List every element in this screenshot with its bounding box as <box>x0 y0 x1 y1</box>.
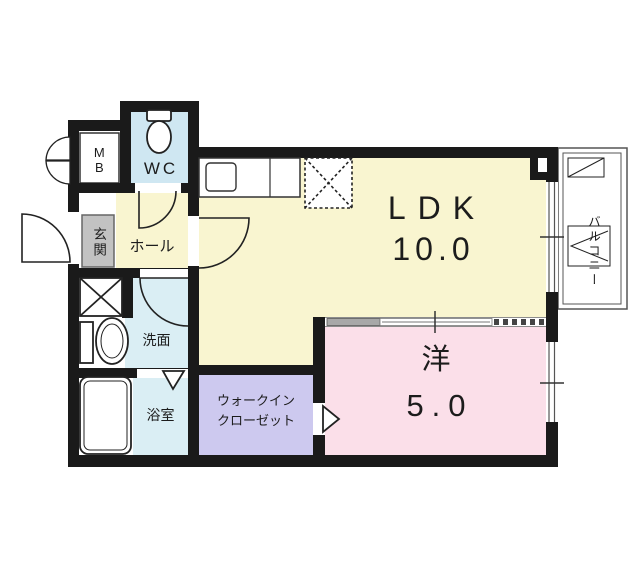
toilet-bowl <box>147 121 171 153</box>
room-meter-box <box>80 133 119 183</box>
toilet-fixture <box>147 110 171 153</box>
room-wic <box>199 375 313 455</box>
wall-mb-bottom <box>68 183 131 193</box>
wall-bottom <box>68 455 558 467</box>
room-entrance <box>82 215 114 267</box>
room-hall <box>116 191 188 268</box>
toilet-tank <box>147 110 171 121</box>
opening-wc-door <box>135 183 181 193</box>
kitchen-sink <box>206 163 236 191</box>
wall-wic-right <box>313 317 325 458</box>
sliding-door-panel-gray <box>327 319 380 326</box>
floorplan-page: LDK 10.0 洋 5.0 ウォークイン クローゼット ホール 洗面 浴室 W… <box>0 0 640 578</box>
kitchen-counter <box>199 158 300 197</box>
washer-space <box>80 278 122 316</box>
floorplan-drawing <box>0 0 640 578</box>
wall-ldk-top <box>188 147 558 158</box>
room-washroom <box>125 278 188 368</box>
refrigerator-space <box>305 158 352 208</box>
opening-washroom-door <box>140 269 188 278</box>
corner-notch <box>538 158 547 172</box>
room-western <box>325 327 546 455</box>
entrance-door-swing <box>22 214 70 262</box>
wall-wc-left <box>120 101 131 193</box>
wall-wic-top <box>188 365 325 375</box>
shelf-fixture <box>80 322 93 363</box>
balcony <box>558 148 627 309</box>
bathtub <box>80 377 131 454</box>
mb-door-flap-bottom <box>46 161 70 184</box>
wall-washroom-stub <box>122 278 133 318</box>
opening-western-window <box>546 342 558 422</box>
opening-hall-ldk <box>188 216 199 266</box>
room-ldk-lower <box>199 317 313 365</box>
room-bathroom <box>133 378 188 455</box>
mb-door-flap-top <box>46 137 70 160</box>
